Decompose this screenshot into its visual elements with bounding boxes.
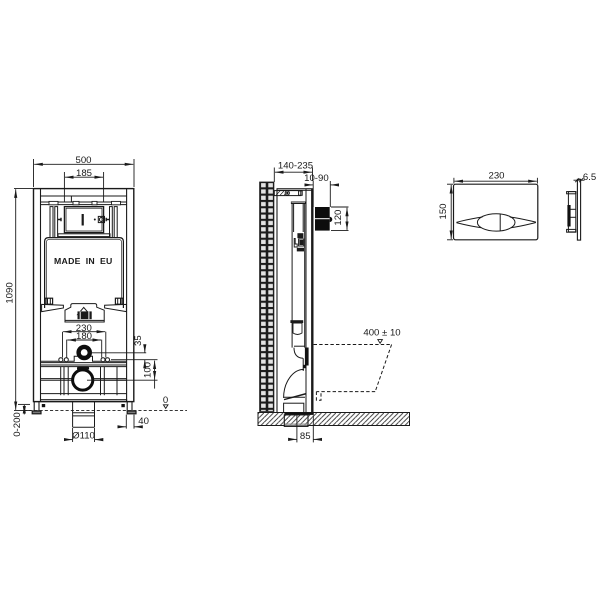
svg-text:10-90: 10-90 (304, 173, 329, 184)
svg-text:400 ± 10: 400 ± 10 (363, 328, 400, 339)
svg-text:230: 230 (488, 170, 504, 181)
svg-text:0: 0 (163, 395, 168, 406)
svg-text:40: 40 (138, 416, 149, 427)
svg-text:6.5: 6.5 (583, 172, 596, 183)
svg-text:150: 150 (438, 203, 449, 219)
svg-text:1090: 1090 (5, 282, 16, 303)
svg-text:0-200: 0-200 (12, 412, 23, 437)
svg-text:140-235: 140-235 (278, 161, 313, 172)
svg-text:Ø110: Ø110 (72, 430, 95, 441)
svg-text:MADE IN EU: MADE IN EU (54, 256, 113, 266)
svg-text:180: 180 (76, 331, 92, 342)
svg-text:185: 185 (76, 168, 92, 179)
svg-text:35: 35 (133, 335, 144, 346)
svg-text:85: 85 (300, 431, 311, 442)
svg-text:120: 120 (333, 210, 344, 226)
svg-text:500: 500 (75, 155, 91, 166)
svg-text:100: 100 (143, 362, 154, 378)
